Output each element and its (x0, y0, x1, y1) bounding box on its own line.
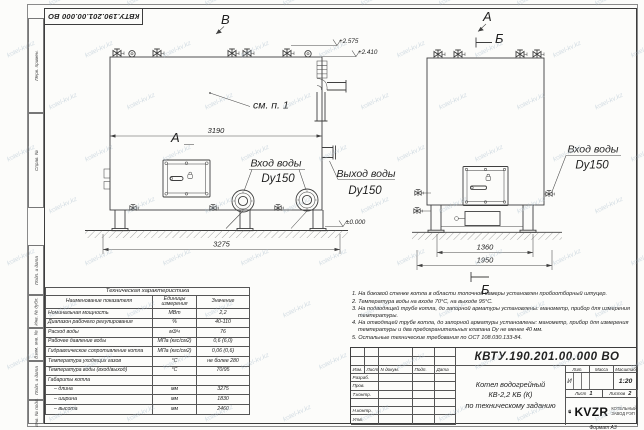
cell (365, 348, 379, 357)
cell: Номинальная мощность (46, 309, 153, 319)
front-view: 3190 3275 В А см. п. 1 Вход воды Dy150 (85, 12, 396, 254)
cell: °С (153, 366, 197, 376)
cell (413, 374, 435, 382)
org-line2: ЗАВОД РЭП (611, 412, 637, 417)
outlet-stub (322, 146, 336, 160)
table-row: Рабочее давление водыМПа (кгс/см2)0,6 (6… (46, 337, 250, 347)
cell: 2460 (197, 404, 250, 414)
cell: Расход воды (46, 328, 153, 338)
outlet-dy: Dy150 (348, 185, 382, 197)
cell (379, 357, 413, 366)
cell: 0,06 (0,6) (197, 347, 250, 357)
rev-header-data: Дата (435, 366, 456, 374)
valve-icon (516, 50, 527, 58)
doc-number: КВТУ.190.201.00.000 ВО (456, 348, 638, 366)
scale-label: Масштаб (614, 366, 638, 373)
valve-icon (533, 50, 544, 58)
view-letter-v: В (221, 12, 230, 27)
section-letter-b-top: Б (495, 31, 504, 46)
cell (379, 374, 413, 382)
cell (379, 391, 413, 399)
top-doc-stamp: КВТУ.190.201.00.000 ВО (44, 8, 143, 25)
cell (413, 391, 435, 399)
table-row: Диапазон рабочего регулирования%40-110 (46, 318, 250, 328)
valve-icon (228, 49, 239, 57)
cell: не более 280 (197, 356, 250, 366)
cell: 40-110 (197, 318, 250, 328)
cell (379, 348, 413, 357)
cell: Температура воды (вход/выход) (46, 366, 153, 376)
cell (413, 348, 435, 357)
inlet-dy-side: Dy150 (575, 160, 609, 172)
valve-icon (283, 49, 294, 57)
lit-label: Лит. (566, 366, 590, 373)
top-doc-stamp-number: КВТУ.190.201.00.000 ВО (48, 12, 140, 21)
sig-label-prov: Пров. (351, 382, 379, 390)
table-row: Расход водым3/ч76 (46, 328, 250, 338)
format-label: Формат А3 (568, 425, 638, 430)
col-header-units: Единицы измерения (153, 296, 197, 309)
ground-hatch (412, 232, 562, 240)
cell: МВт (153, 309, 197, 319)
cell (413, 415, 435, 425)
drain-valve-icon (546, 191, 555, 197)
rev-header-podp: Подп. (413, 366, 435, 374)
cell: 3275 (197, 385, 250, 395)
kvzr-logo-icon (568, 405, 572, 418)
rev-header-ndoc: N докум. (379, 366, 413, 374)
cell: м3/ч (153, 328, 197, 338)
cell (379, 382, 413, 390)
callout-see-note: см. п. 1 (253, 100, 289, 112)
sheets-value: 2 (628, 391, 631, 397)
valve-icon (454, 50, 465, 58)
title-block: Изм. Лист N докум. Подп. Дата Разраб. Пр… (350, 347, 637, 424)
cell: 1830 (197, 395, 250, 405)
inlet-label-front: Вход воды (251, 158, 302, 170)
cell (435, 348, 456, 357)
spec-table-title: Техническая характеристика (46, 288, 250, 296)
cell (435, 415, 456, 425)
cell (351, 348, 365, 357)
cell: мм (153, 395, 197, 405)
cell (413, 399, 435, 407)
cell (435, 357, 456, 366)
lit-value: И (566, 373, 574, 389)
sheet-label: Лист (575, 391, 586, 396)
table-header-row: Наименование показателя Единицы измерени… (46, 296, 250, 309)
table-row: Номинальная мощностьМВт2,2 (46, 309, 250, 319)
sig-label-utv: Утв. (351, 415, 379, 425)
elev-top: +2.575 (339, 38, 359, 45)
sig-label-blank (351, 399, 379, 407)
drawing-title: Котел водогрейный КВ-2,2 КБ (К) по техни… (456, 366, 566, 425)
cell: – высота (46, 404, 153, 414)
note-item: 5. Остальные технические требования по О… (352, 335, 636, 342)
elev-mid: +2.410 (358, 49, 378, 56)
sheets-cell: Листов2 (603, 390, 639, 397)
cell: 70/95 (197, 366, 250, 376)
ash-box (455, 212, 500, 226)
drawing-title-line2: КВ-2,2 КБ (К) (488, 390, 532, 401)
org-name: КОТЕЛЬНЫЙ ЗАВОД РЭП (611, 407, 637, 417)
col-header-value: Значение (197, 296, 250, 309)
ground-hatch (85, 231, 348, 239)
cell (379, 399, 413, 407)
table-row: – длинамм3275 (46, 385, 250, 395)
cell: – ширина (46, 395, 153, 405)
front-supports (112, 210, 326, 231)
rev-header-list: Лист (365, 366, 379, 374)
mass-label: Масса (590, 366, 614, 373)
valve-icon (153, 49, 164, 57)
table-row: Температура уходящих газов°Сне более 280 (46, 356, 250, 366)
cell: % (153, 318, 197, 328)
sheet-value: 1 (589, 391, 592, 397)
cell: 0,6 (6,0) (197, 337, 250, 347)
mass-value (590, 373, 614, 390)
cell (379, 407, 413, 415)
cell: МПа (кгс/см2) (153, 347, 197, 357)
cell: мм (153, 385, 197, 395)
front-width-dim: 3190 (208, 126, 226, 135)
title-block-right: Лит. Масса Масштаб И 1:20 Лист1 Листов2 (566, 366, 638, 425)
cell: Температура уходящих газов (46, 356, 153, 366)
cell (574, 373, 582, 389)
left-wall-stub (104, 169, 110, 178)
side-inner-dim: 1360 (477, 243, 495, 252)
note-item: 1. На боковой стенке котла в области топ… (352, 291, 636, 298)
sheet-row: Лист1 Листов2 (566, 390, 638, 398)
cell (435, 407, 456, 415)
outlet-label: Выход воды (336, 168, 395, 180)
cell (435, 382, 456, 390)
technical-notes: 1. На боковой стенке котла в области топ… (352, 291, 636, 342)
cell: Гидравлическое сопротивление котла (46, 347, 153, 357)
lit-cells: И (566, 373, 590, 390)
cell (379, 415, 413, 425)
cell (413, 382, 435, 390)
drawing-title-line1: Котел водогрейный (476, 380, 545, 391)
drawing-sheet: Перв. примен. Справ. № Подп. и дата Инв.… (0, 0, 644, 430)
cell: 2,2 (197, 309, 250, 319)
cell (197, 376, 250, 386)
org-cell: KVZR КОТЕЛЬНЫЙ ЗАВОД РЭП (566, 398, 638, 425)
valve-icon (243, 49, 254, 57)
valve-icon (113, 49, 124, 57)
left-wall-stub (104, 182, 110, 190)
side-view: А Б (412, 9, 621, 297)
cell (153, 376, 197, 386)
side-outer-dim: 1950 (477, 256, 495, 265)
cell (413, 407, 435, 415)
note-item: 3. На подводящей трубе котла, до запорно… (352, 306, 636, 320)
table-row: – ширинамм1830 (46, 395, 250, 405)
cell: 76 (197, 328, 250, 338)
table-row: Гидравлическое сопротивление котлаМПа (к… (46, 347, 250, 357)
sig-label-tkontr: Т.контр. (351, 391, 379, 399)
cell: Диапазон рабочего регулирования (46, 318, 153, 328)
lifting-eye-icon (305, 51, 311, 57)
cell (351, 357, 365, 366)
cell (582, 373, 590, 389)
revision-table: Изм. Лист N докум. Подп. Дата Разраб. Пр… (351, 348, 456, 425)
cell (435, 374, 456, 382)
inlet-dy-front: Dy150 (261, 173, 295, 185)
col-header-name: Наименование показателя (46, 296, 153, 309)
cell: МПа (кгс/см2) (153, 337, 197, 347)
cell: Рабочее давление воды (46, 337, 153, 347)
cell (435, 391, 456, 399)
table-row: – высотамм2460 (46, 404, 250, 414)
lifting-eye-icon (129, 51, 135, 57)
sheet-cell: Лист1 (566, 390, 603, 397)
cell (435, 399, 456, 407)
inlet-label-side: Вход воды (568, 144, 619, 156)
table-row: Габариты котла (46, 376, 250, 386)
front-length-dim: 3275 (213, 240, 231, 249)
view-letter-a-left: А (170, 130, 180, 145)
cell (365, 357, 379, 366)
note-item: 4. На отводящей трубе котла, до запорной… (352, 320, 636, 334)
sheets-label: Листов (609, 391, 625, 396)
cell: Габариты котла (46, 376, 153, 386)
logo-text: KVZR (574, 405, 608, 419)
cell: – длина (46, 385, 153, 395)
cell: мм (153, 404, 197, 414)
elev-zero: ±0.000 (346, 219, 366, 226)
rev-header-izm: Изм. (351, 366, 365, 374)
sig-label-nkontr: Н.контр. (351, 407, 379, 415)
note-item: 2. Температура воды на входе 70°С, на вы… (352, 299, 636, 306)
valve-icon (434, 50, 445, 58)
spec-table: Техническая характеристика Наименование … (45, 287, 250, 415)
drawing-title-line3: по техническому заданию (465, 401, 555, 412)
table-row: Температура воды (вход/выход)°С70/95 (46, 366, 250, 376)
cell (413, 357, 435, 366)
cell: °С (153, 356, 197, 366)
view-letter-a: А (482, 9, 492, 24)
scale-value: 1:20 (614, 373, 638, 390)
sig-label-razrab: Разраб. (351, 374, 379, 382)
